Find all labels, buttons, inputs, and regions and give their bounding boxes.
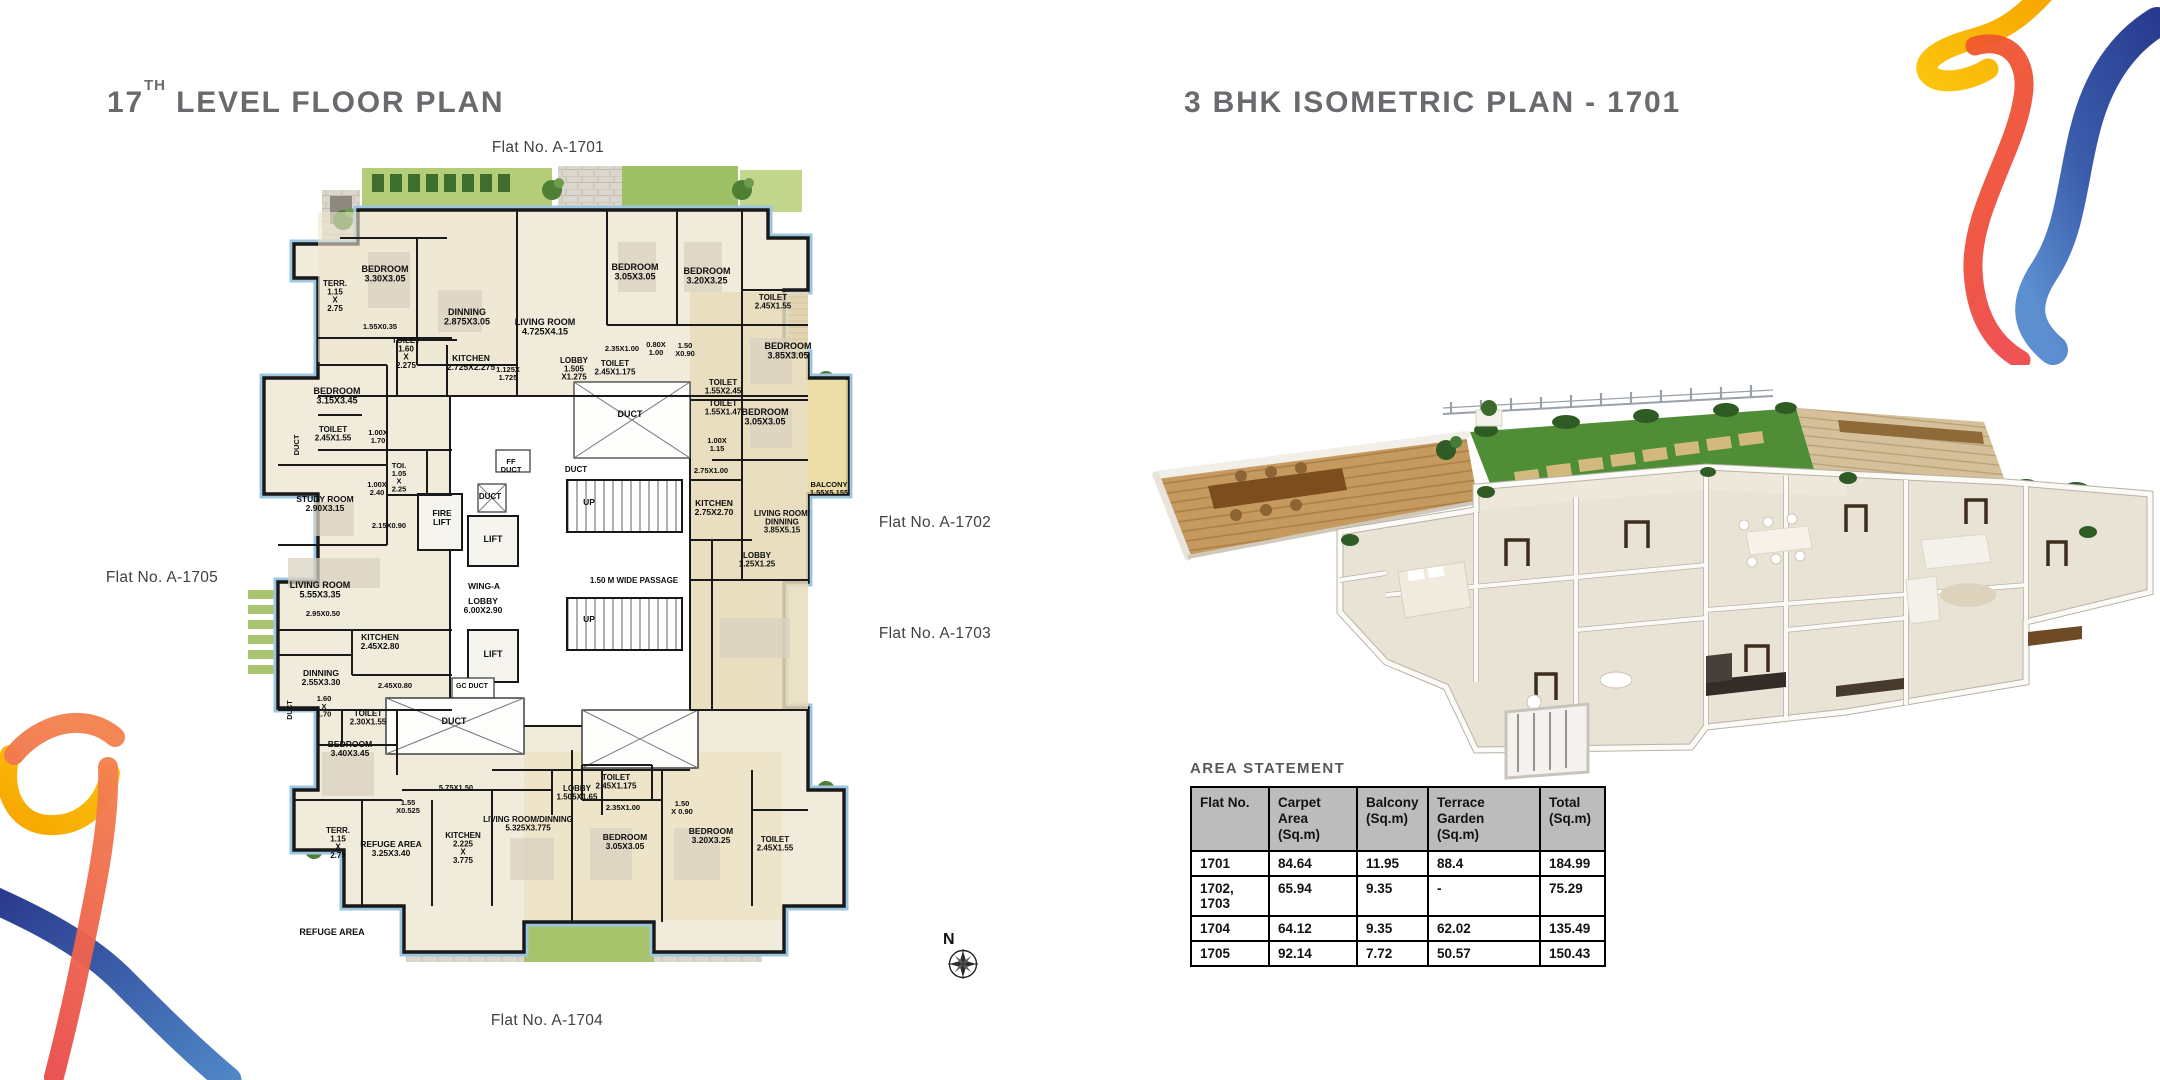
room-label: LOBBY6.00X2.90 — [464, 596, 503, 615]
floor-plan-drawing: BEDROOM3.30X3.05TERR.1.15X2.751.55X0.35D… — [222, 150, 882, 1012]
room-label: 0.80X1.00 — [646, 340, 666, 357]
room-label: LIVING ROOM4.725X4.15 — [515, 317, 576, 336]
room-label: BEDROOM3.05X3.05 — [603, 832, 647, 851]
north-compass: N — [931, 922, 993, 986]
table-cell: 84.64 — [1269, 851, 1357, 876]
title-superscript: TH — [144, 77, 166, 94]
table-cell: 184.99 — [1540, 851, 1605, 876]
room-label: 1.50X0.90 — [675, 341, 695, 358]
room-label: UP — [583, 497, 595, 507]
table-cell: 9.35 — [1357, 916, 1428, 941]
flat-tag: Flat No. A-1705 — [106, 569, 218, 587]
room-label: 2.75X1.00 — [694, 466, 728, 475]
table-row: 170592.147.7250.57150.43 — [1191, 941, 1605, 966]
table-cell: 1702, 1703 — [1191, 876, 1269, 916]
table-cell: 50.57 — [1428, 941, 1540, 966]
room-label: DUCT — [442, 716, 467, 726]
room-label: BEDROOM3.20X3.25 — [684, 266, 731, 285]
table-cell: - — [1428, 876, 1540, 916]
room-label: 2.95X0.50 — [306, 609, 340, 618]
room-label: 1.00X1.15 — [707, 436, 727, 453]
room-label: 2.45X0.80 — [378, 681, 412, 690]
room-label: DINNING2.55X3.30 — [302, 668, 341, 687]
room-label: 2.15X0.90 — [372, 521, 406, 530]
room-label: BEDROOM3.05X3.05 — [612, 262, 659, 281]
room-label: TOILET2.45X1.55 — [755, 293, 792, 310]
table-cell: 88.4 — [1428, 851, 1540, 876]
room-label: DUCT — [618, 409, 643, 419]
room-label: DINNING2.875X3.05 — [444, 307, 490, 326]
room-label: 5.75X1.50 — [439, 783, 473, 792]
table-row: 170184.6411.9588.4184.99 — [1191, 851, 1605, 876]
area-statement-panel: AREA STATEMENT Flat No.Carpet Area(Sq.m)… — [1190, 760, 1610, 967]
flat-tag: Flat No. A-1703 — [879, 625, 991, 643]
table-header-cell: Terrace Garden(Sq.m) — [1428, 787, 1540, 851]
table-cell: 11.95 — [1357, 851, 1428, 876]
iso-back-deck — [1796, 408, 2004, 478]
room-label: LIFT — [484, 649, 503, 659]
room-label: TOILET1.55X1.47 — [705, 399, 742, 416]
room-label: 1.55X0.35 — [363, 322, 397, 331]
flat-tag: Flat No. A-1704 — [491, 1012, 603, 1030]
room-label: TOILET2.30X1.55 — [350, 709, 387, 726]
room-label: REFUGE AREA — [299, 927, 365, 937]
room-label: KITCHEN2.75X2.70 — [695, 498, 734, 517]
iso-rooms — [1340, 467, 2150, 750]
table-cell: 7.72 — [1357, 941, 1428, 966]
room-label: BEDROOM3.85X3.05 — [765, 341, 812, 360]
room-label: 1.00X1.70 — [368, 428, 388, 445]
room-label: DUCT — [565, 465, 587, 474]
room-label: BEDROOM3.05X3.05 — [742, 407, 789, 426]
room-label: TOILET1.55X2.45 — [705, 378, 742, 395]
table-header-cell: Balcony(Sq.m) — [1357, 787, 1428, 851]
compass-n-label: N — [943, 931, 955, 948]
room-label: BEDROOM3.15X3.45 — [314, 386, 361, 405]
room-label: TOILET2.45X1.55 — [315, 425, 352, 442]
table-cell: 1705 — [1191, 941, 1269, 966]
table-cell: 62.02 — [1428, 916, 1540, 941]
room-label: TOI.1.05X2.25 — [392, 461, 407, 493]
table-header-cell: Flat No. — [1191, 787, 1269, 851]
room-label: KITCHEN2.725X2.275 — [447, 353, 495, 372]
room-label: LOBBY1.25X1.25 — [739, 551, 776, 568]
room-label: BEDROOM3.40X3.45 — [328, 739, 372, 758]
table-cell: 9.35 — [1357, 876, 1428, 916]
brochure-page: { "titles": { "left_num": "17", "left_su… — [0, 0, 2160, 1080]
isometric-plan-illustration — [1146, 380, 2158, 782]
room-label: GC DUCT — [456, 683, 489, 690]
table-row: 170464.129.3562.02135.49 — [1191, 916, 1605, 941]
room-label: KITCHEN2.45X2.80 — [361, 632, 400, 651]
decorative-ribbon-top-right — [1875, 0, 2160, 365]
table-header-row: Flat No.Carpet Area(Sq.m)Balcony(Sq.m)Te… — [1191, 787, 1605, 851]
room-label: UP — [583, 614, 595, 624]
room-label: LIFT — [484, 534, 503, 544]
room-label: DUCT — [479, 492, 501, 501]
table-cell: 65.94 — [1269, 876, 1357, 916]
area-statement-title: AREA STATEMENT — [1190, 760, 1610, 777]
room-label: FIRELIFT — [432, 508, 452, 527]
room-label: 1.125X1.725 — [496, 365, 520, 382]
table-cell: 150.43 — [1540, 941, 1605, 966]
room-label: 1.00X2.40 — [367, 480, 387, 497]
table-cell: 135.49 — [1540, 916, 1605, 941]
room-label: 2.35X1.00 — [606, 803, 640, 812]
room-label: TOILET2.45X1.55 — [757, 835, 794, 852]
left-section-title: 17TH LEVEL FLOOR PLAN — [107, 86, 504, 120]
table-row: 1702, 170365.949.35-75.29 — [1191, 876, 1605, 916]
table-header-cell: Total(Sq.m) — [1540, 787, 1605, 851]
table-header-cell: Carpet Area(Sq.m) — [1269, 787, 1357, 851]
right-section-title: 3 BHK ISOMETRIC PLAN - 1701 — [1184, 86, 1681, 120]
room-label: 1.50 M WIDE PASSAGE — [590, 576, 679, 585]
room-label: 2.35X1.00 — [605, 344, 639, 353]
flat-tag: Flat No. A-1702 — [879, 514, 991, 532]
room-label: BALCONY1.55X5.155 — [810, 480, 848, 497]
room-label: DUCT — [292, 434, 301, 455]
room-label: WING-A — [468, 581, 500, 591]
table-cell: 75.29 — [1540, 876, 1605, 916]
room-label: DUCT — [287, 700, 294, 720]
table-cell: 92.14 — [1269, 941, 1357, 966]
room-label: BEDROOM3.20X3.25 — [689, 826, 733, 845]
table-cell: 64.12 — [1269, 916, 1357, 941]
table-cell: 1701 — [1191, 851, 1269, 876]
area-statement-table: Flat No.Carpet Area(Sq.m)Balcony(Sq.m)Te… — [1190, 786, 1606, 967]
room-label: BEDROOM3.30X3.05 — [362, 264, 409, 283]
table-cell: 1704 — [1191, 916, 1269, 941]
